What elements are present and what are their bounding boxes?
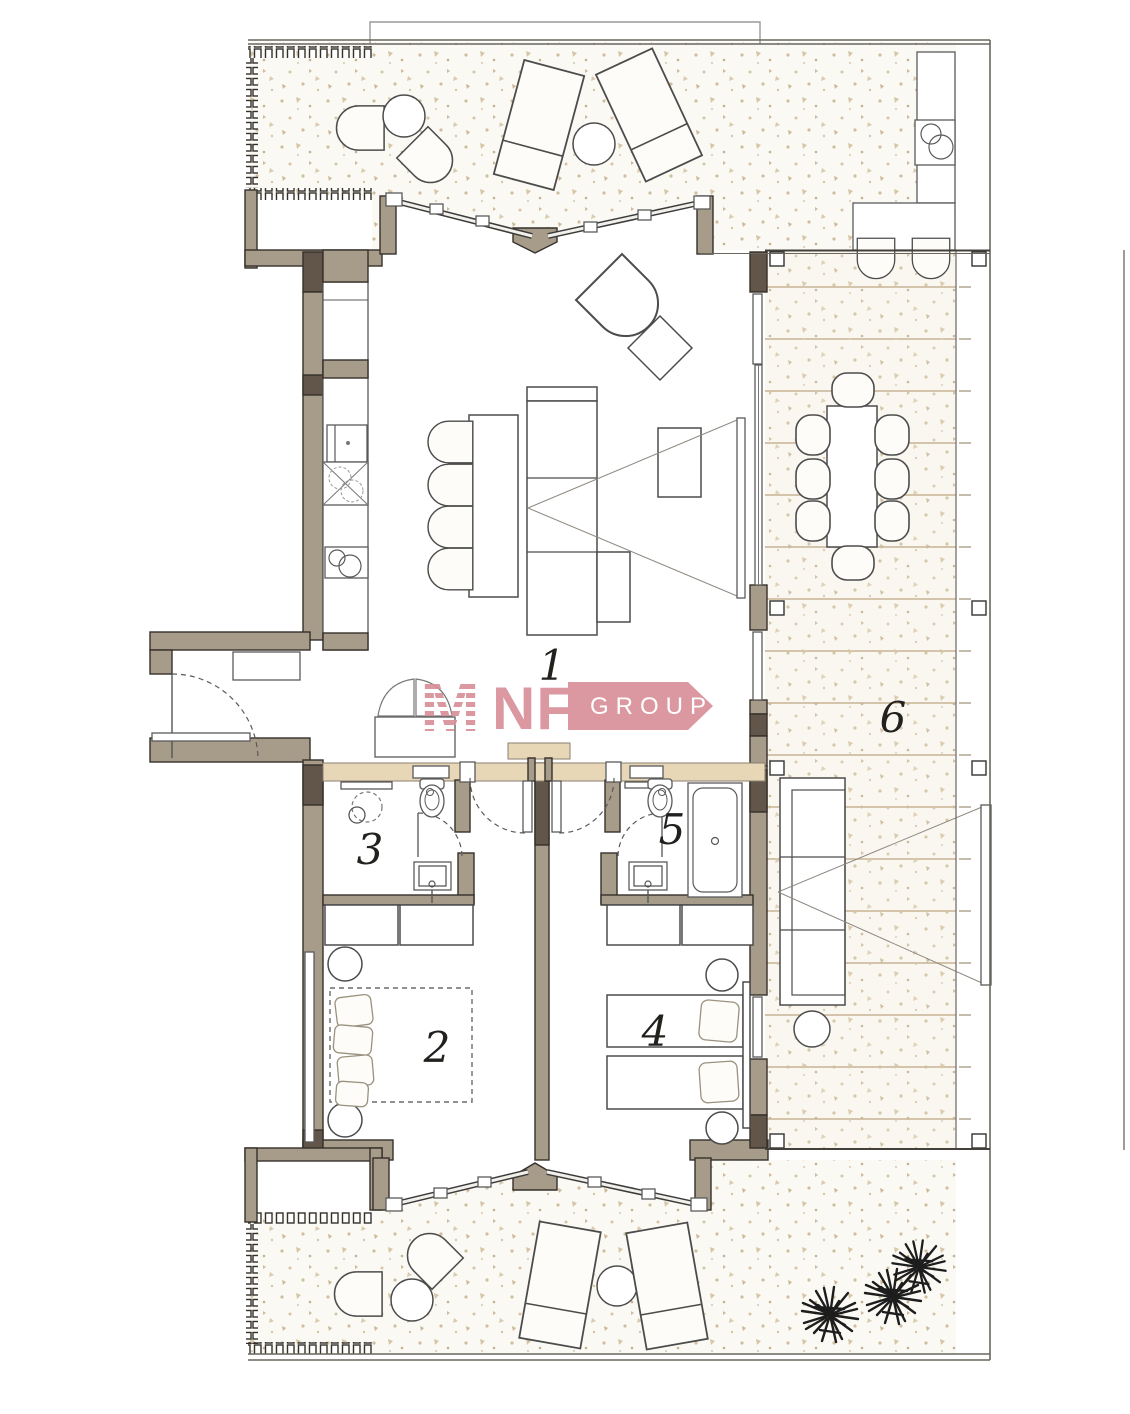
nightstand (706, 1112, 738, 1144)
nightstand (328, 1103, 362, 1137)
kitchen (323, 250, 368, 650)
terrace-table (383, 95, 425, 137)
room-label-deck: 6 (880, 693, 907, 742)
room-label-bedroom2: 2 (423, 1023, 451, 1072)
logo-mark-striped: M (420, 667, 480, 747)
fridge (327, 425, 367, 462)
nightstand (706, 959, 738, 991)
bedroom-4 (607, 905, 753, 1144)
wardrobe (325, 905, 398, 945)
outdoor-dining-table (827, 406, 877, 547)
threshold-band (323, 763, 765, 781)
nightstand (328, 947, 362, 981)
outdoor-sofa (780, 778, 845, 1005)
terrace-table (597, 1266, 637, 1306)
terrace-table (573, 123, 615, 165)
bedroom4-east-window (753, 997, 762, 1057)
kitchen-sink (325, 547, 368, 578)
tv-wall-panel (737, 418, 745, 598)
wardrobe (682, 905, 753, 945)
terrace-chair (337, 106, 385, 150)
side-table (794, 1011, 830, 1047)
toilet (420, 779, 444, 817)
entry-niche (152, 733, 250, 741)
wardrobe (607, 905, 680, 945)
stove (323, 462, 368, 505)
terrace-chair (335, 1272, 383, 1316)
wardrobe (400, 905, 473, 945)
entry-cabinet (233, 652, 300, 680)
terrace-table (391, 1279, 433, 1321)
dining-table-indoor (469, 415, 518, 597)
porch-top-floor (257, 196, 372, 252)
hall-bench (508, 743, 570, 759)
logo-group-text: GROUP (590, 693, 713, 720)
floor-plan-canvas: 1 2 3 4 5 6 M NF GROUP (0, 0, 1130, 1414)
porch-bottom-floor (257, 1160, 370, 1212)
bedroom2-west-window (305, 952, 314, 1142)
headboard (743, 982, 750, 1128)
room-label-bedroom4: 4 (641, 1007, 669, 1056)
floor-plan-drawing: 1 2 3 4 5 6 M NF GROUP (0, 0, 1130, 1414)
logo-nf-text: NF (492, 675, 574, 742)
sofa-chaise (597, 552, 630, 622)
bedroom4-door-leaf (552, 781, 561, 832)
railing-strip (956, 42, 992, 1355)
living-room-east-glazing (753, 294, 762, 700)
bathtub (688, 783, 742, 897)
room-label-bathroom3: 3 (357, 825, 384, 874)
room-label-bathroom5: 5 (659, 805, 686, 854)
bedroom2-door-leaf (523, 781, 532, 832)
